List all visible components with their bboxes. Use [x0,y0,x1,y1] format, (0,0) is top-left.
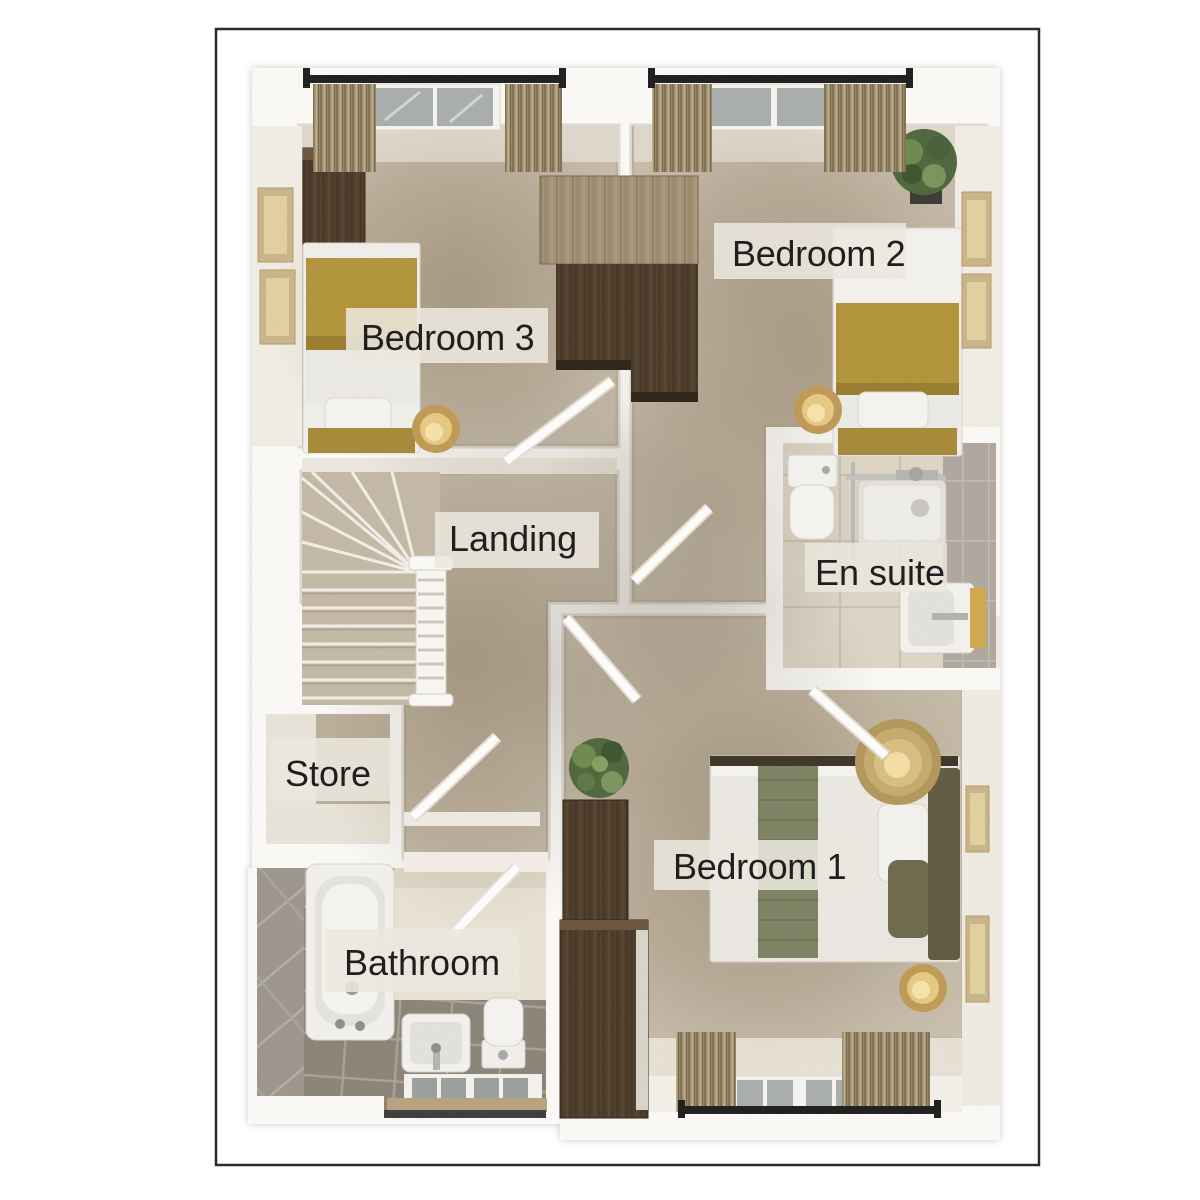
svg-text:Bedroom 1: Bedroom 1 [673,846,846,887]
svg-text:Bedroom 3: Bedroom 3 [361,317,534,358]
svg-text:Bathroom: Bathroom [344,942,500,983]
svg-text:Store: Store [285,753,371,794]
svg-text:Landing: Landing [449,518,577,559]
svg-text:Bedroom 2: Bedroom 2 [732,233,905,274]
svg-text:En suite: En suite [815,552,945,593]
